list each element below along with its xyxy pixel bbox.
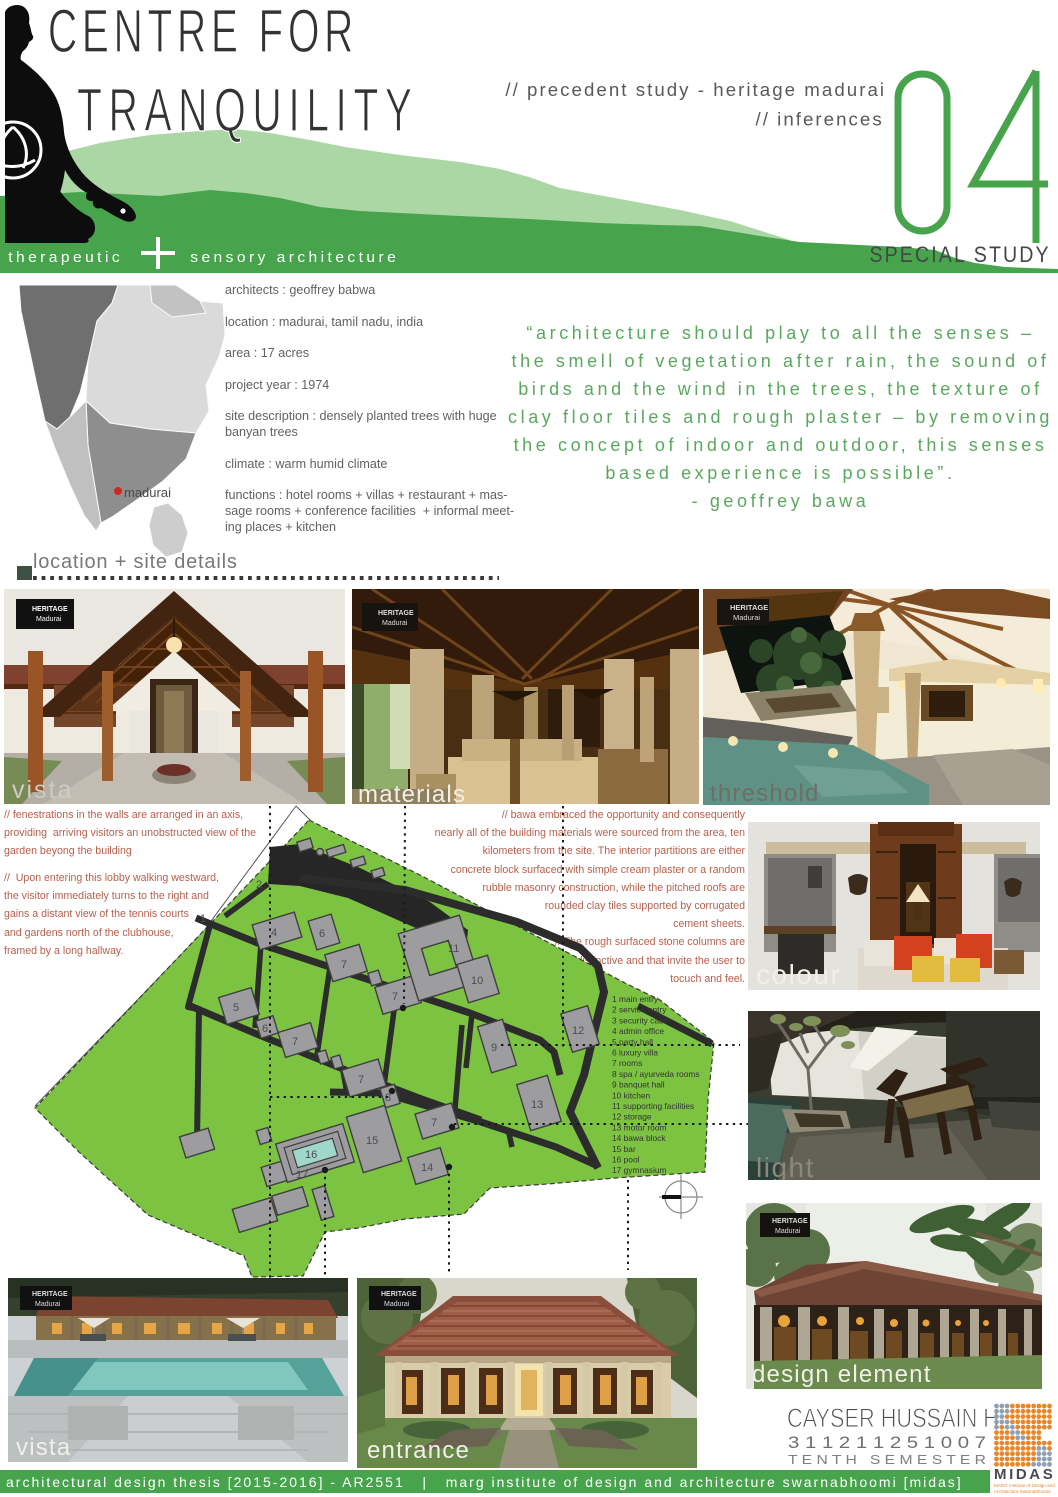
svg-text:17: 17 — [296, 1169, 308, 1181]
svg-text:CAYSER HUSSAIN H: CAYSER HUSSAIN H — [787, 1403, 999, 1433]
svg-text:13: 13 — [531, 1099, 543, 1111]
svg-text:16 pool: 16 pool — [612, 1155, 640, 1165]
svg-text:5 party hall: 5 party hall — [612, 1037, 653, 1047]
svg-text:therapeutic: therapeutic — [8, 249, 123, 266]
svg-text:2: 2 — [256, 879, 262, 891]
svg-text:// precedent study - heritage: // precedent study - heritage madurai — [505, 79, 886, 100]
svg-text:CENTRE FOR: CENTRE FOR — [48, 0, 358, 66]
svg-text:7: 7 — [358, 1074, 364, 1086]
svg-text:Madurai: Madurai — [36, 616, 62, 623]
svg-text:10 kitchen: 10 kitchen — [612, 1090, 651, 1100]
svg-text:1: 1 — [200, 913, 206, 925]
svg-text:7: 7 — [431, 1117, 437, 1129]
svg-text:8 spa / ayurveda rooms: 8 spa / ayurveda rooms — [612, 1069, 700, 1079]
svg-text:5: 5 — [233, 1002, 239, 1014]
svg-text:SPECIAL STUDY: SPECIAL STUDY — [869, 243, 1050, 267]
svg-text:HERITAGE: HERITAGE — [32, 1291, 68, 1298]
svg-text:Madurai: Madurai — [35, 1301, 61, 1308]
svg-text:Madurai: Madurai — [382, 620, 408, 627]
svg-text:9 banquet hall: 9 banquet hall — [612, 1080, 665, 1090]
svg-text:HERITAGE: HERITAGE — [32, 606, 68, 613]
svg-text:sensory architecture: sensory architecture — [190, 249, 399, 266]
svg-text:Architecture Swarnabhoomi: Architecture Swarnabhoomi — [994, 1489, 1050, 1494]
svg-text:design element: design element — [752, 1361, 932, 1388]
svg-text:4: 4 — [271, 927, 277, 939]
svg-text:HERITAGE: HERITAGE — [378, 610, 414, 617]
svg-text:Madurai: Madurai — [733, 613, 760, 622]
svg-text:4 admin office: 4 admin office — [612, 1026, 664, 1036]
svg-text:13 motor room: 13 motor room — [612, 1122, 666, 1132]
svg-text:Madurai: Madurai — [775, 1228, 801, 1235]
svg-text:1 main entry: 1 main entry — [612, 994, 659, 1004]
svg-text:17 gymnasium: 17 gymnasium — [612, 1165, 666, 1175]
svg-text:HERITAGE: HERITAGE — [730, 603, 768, 612]
svg-text:7: 7 — [292, 1036, 298, 1048]
svg-text:14: 14 — [421, 1162, 433, 1174]
svg-text:vista: vista — [16, 1434, 71, 1461]
svg-text:7 rooms: 7 rooms — [612, 1058, 642, 1068]
svg-text:11: 11 — [448, 943, 459, 955]
svg-text:10: 10 — [471, 975, 483, 987]
svg-text:9: 9 — [491, 1042, 497, 1054]
svg-text:6: 6 — [262, 1023, 268, 1035]
svg-text:2 service entry: 2 service entry — [612, 1005, 667, 1015]
svg-text:HERITAGE: HERITAGE — [381, 1291, 417, 1298]
svg-text:6: 6 — [319, 928, 325, 940]
svg-text:colour: colour — [756, 959, 841, 990]
svg-text:3 security cabin: 3 security cabin — [612, 1015, 671, 1025]
svg-text:// inferences: // inferences — [755, 109, 883, 130]
svg-text:7: 7 — [392, 991, 398, 1003]
svg-text:12 storage: 12 storage — [612, 1112, 652, 1122]
svg-text:MARG Institute of Design and: MARG Institute of Design and — [994, 1483, 1055, 1488]
svg-text:MIDAS: MIDAS — [994, 1466, 1055, 1483]
svg-text:14 bawa block: 14 bawa block — [612, 1133, 666, 1143]
svg-text:entrance: entrance — [367, 1437, 470, 1464]
svg-text:light: light — [756, 1152, 815, 1180]
svg-text:T E N T H S E M E S T E R: T E N T H S E M E S T E R — [788, 1452, 986, 1467]
svg-text:15: 15 — [366, 1135, 378, 1147]
svg-text:3 1 1 2 1 1 2 5 1 0 0 7: 3 1 1 2 1 1 2 5 1 0 0 7 — [788, 1433, 986, 1452]
svg-text:16: 16 — [305, 1149, 317, 1161]
svg-text:11 supporting facilities: 11 supporting facilities — [612, 1101, 694, 1111]
svg-text:TRANQUILITY: TRANQUILITY — [77, 77, 419, 145]
svg-text:HERITAGE: HERITAGE — [772, 1218, 808, 1225]
svg-text:6 luxury villa: 6 luxury villa — [612, 1048, 658, 1058]
svg-text:7: 7 — [341, 959, 347, 971]
svg-text:15 bar: 15 bar — [612, 1144, 636, 1154]
svg-text:Madurai: Madurai — [384, 1301, 410, 1308]
svg-text:12: 12 — [572, 1025, 584, 1037]
svg-text:madurai: madurai — [124, 485, 171, 500]
